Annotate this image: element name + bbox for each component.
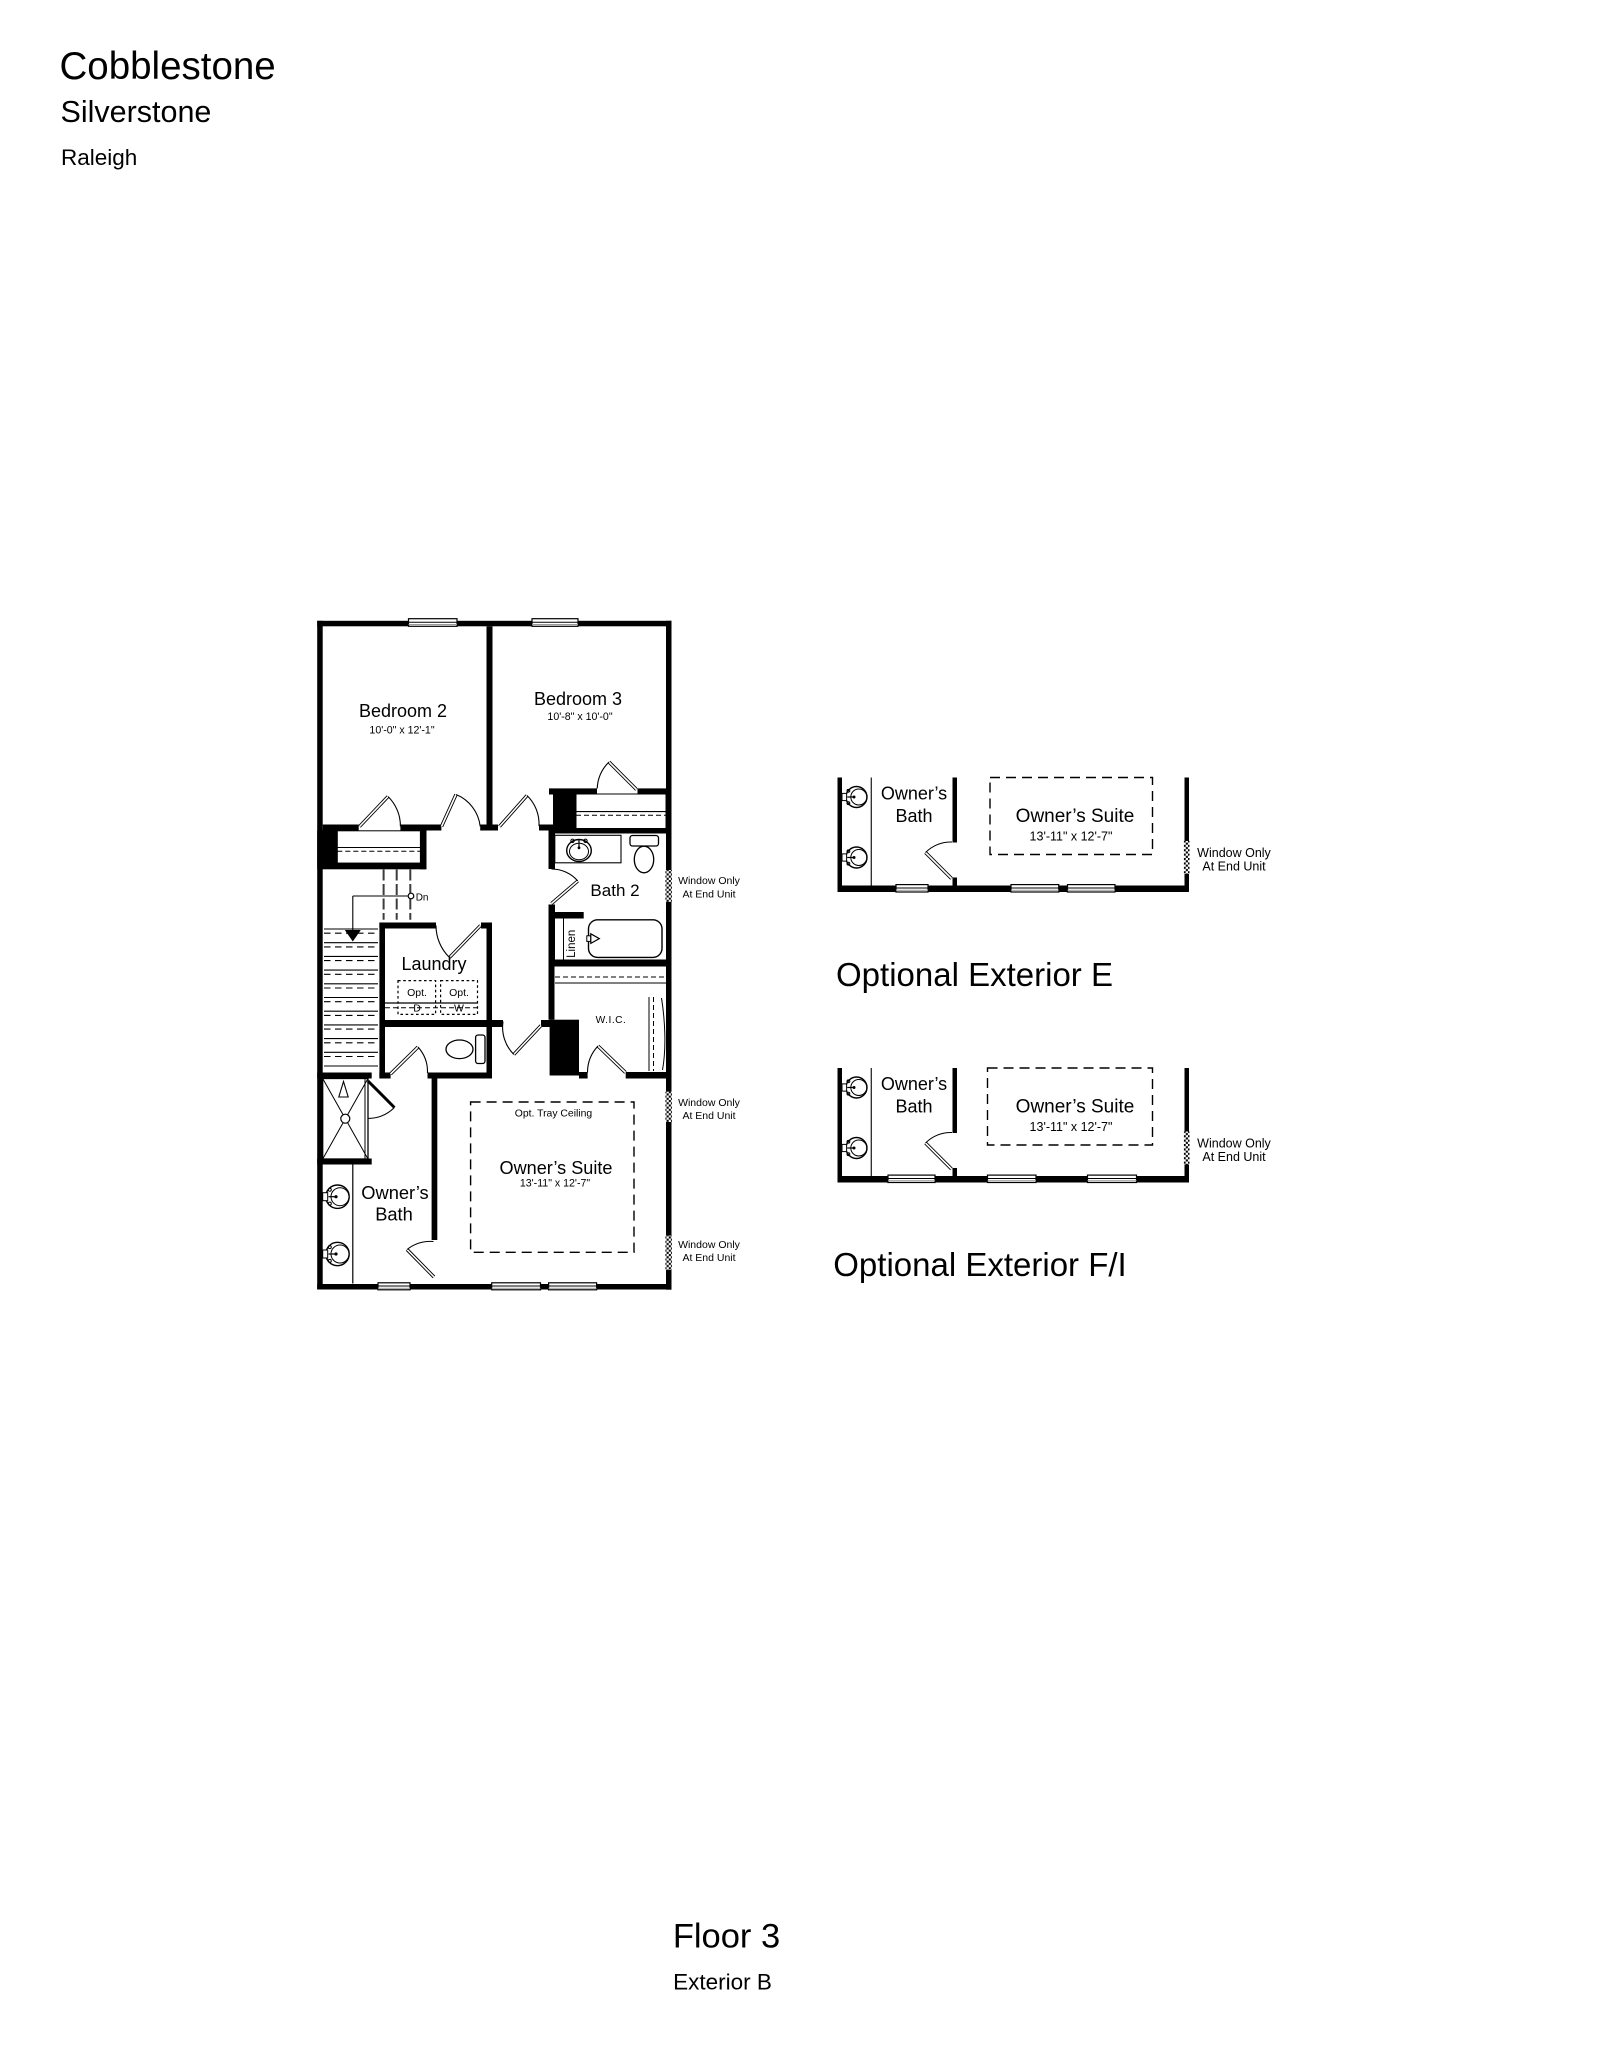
svg-text:Owner’s Suite: Owner’s Suite: [500, 1158, 613, 1178]
svg-text:13'-11" x 12'-7": 13'-11" x 12'-7": [520, 1178, 591, 1190]
svg-text:W: W: [454, 1003, 464, 1015]
svg-text:Opt.: Opt.: [449, 987, 469, 999]
svg-text:Bath: Bath: [895, 1097, 932, 1117]
svg-text:Silverstone: Silverstone: [61, 95, 212, 129]
svg-text:Optional Exterior E: Optional Exterior E: [836, 956, 1113, 993]
svg-text:Floor 3: Floor 3: [673, 1918, 780, 1956]
svg-text:Bath: Bath: [895, 806, 932, 826]
svg-text:D: D: [413, 1003, 421, 1015]
svg-text:Cobblestone: Cobblestone: [60, 45, 276, 88]
svg-text:Exterior B: Exterior B: [673, 1970, 772, 1995]
svg-text:Window Only: Window Only: [1197, 1137, 1271, 1151]
svg-text:Opt. Tray Ceiling: Opt. Tray Ceiling: [515, 1109, 593, 1120]
svg-text:Window Only: Window Only: [678, 1097, 741, 1109]
svg-text:Owner’s: Owner’s: [881, 784, 947, 804]
svg-text:Bedroom 3: Bedroom 3: [534, 689, 622, 709]
svg-text:Dn: Dn: [416, 892, 429, 903]
svg-text:Window Only: Window Only: [678, 1239, 741, 1251]
svg-text:10'-8" x 10'-0": 10'-8" x 10'-0": [547, 711, 612, 723]
svg-text:Bath 2: Bath 2: [590, 881, 639, 900]
svg-text:At End Unit: At End Unit: [682, 1110, 735, 1122]
svg-text:Linen: Linen: [566, 930, 578, 958]
svg-text:Bath: Bath: [375, 1204, 413, 1225]
svg-text:Optional Exterior F/I: Optional Exterior F/I: [833, 1246, 1126, 1283]
svg-text:W.I.C.: W.I.C.: [596, 1015, 627, 1026]
svg-text:Bedroom 2: Bedroom 2: [359, 701, 447, 721]
svg-text:At End Unit: At End Unit: [1202, 860, 1266, 874]
svg-text:Owner’s: Owner’s: [881, 1074, 947, 1094]
svg-text:At End Unit: At End Unit: [682, 888, 735, 900]
svg-text:Laundry: Laundry: [401, 954, 466, 974]
svg-text:Raleigh: Raleigh: [61, 145, 137, 170]
svg-text:Window Only: Window Only: [678, 875, 741, 887]
svg-text:13'-11" x 12'-7": 13'-11" x 12'-7": [1030, 1120, 1113, 1134]
svg-text:Window Only: Window Only: [1197, 846, 1271, 860]
svg-text:13'-11" x 12'-7": 13'-11" x 12'-7": [1030, 830, 1113, 844]
svg-text:At End Unit: At End Unit: [682, 1252, 735, 1264]
svg-text:10'-0" x 12'-1": 10'-0" x 12'-1": [369, 725, 434, 737]
svg-text:Owner’s Suite: Owner’s Suite: [1016, 806, 1135, 827]
svg-text:Opt.: Opt.: [407, 987, 427, 999]
svg-text:At End Unit: At End Unit: [1202, 1150, 1266, 1164]
svg-text:Owner’s: Owner’s: [361, 1182, 428, 1203]
svg-text:Owner’s Suite: Owner’s Suite: [1016, 1097, 1135, 1118]
